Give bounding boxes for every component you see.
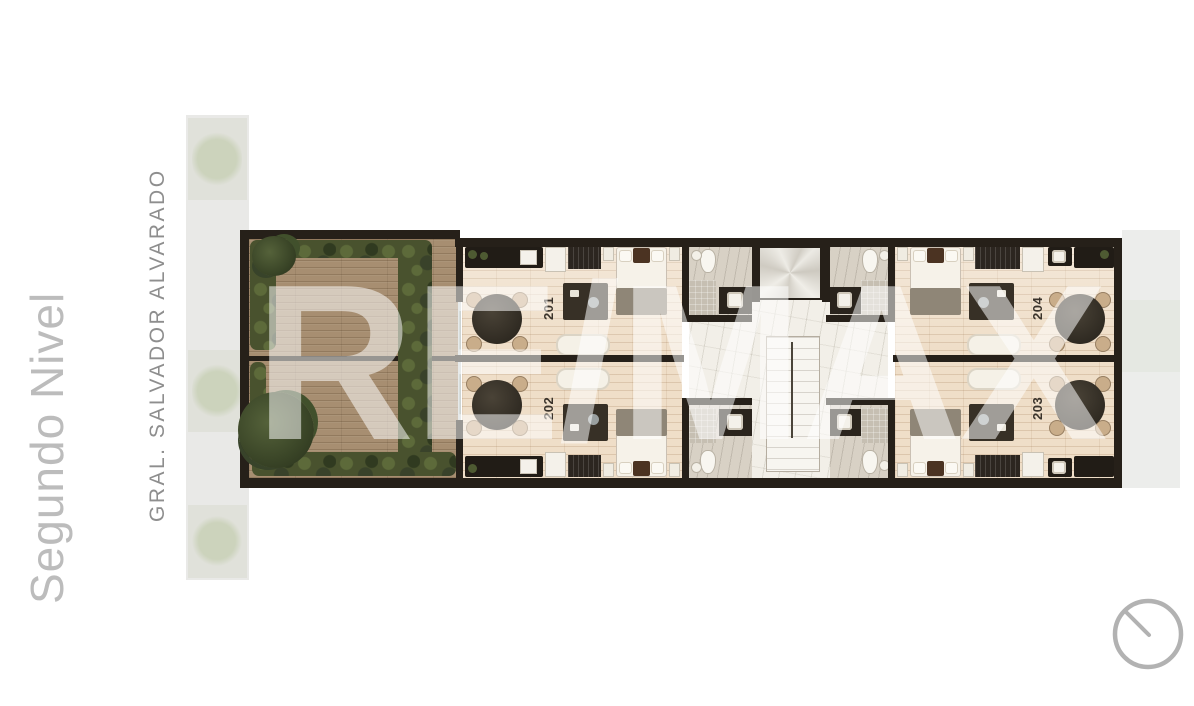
terrace-glass-door <box>458 362 461 420</box>
pillow <box>651 250 664 262</box>
unit-label-204: 204 <box>1030 297 1045 320</box>
desk <box>969 404 1014 441</box>
desk-chair <box>978 414 989 425</box>
wall <box>455 238 1122 247</box>
stair-rail <box>791 342 793 438</box>
plant-pot <box>1100 250 1109 259</box>
bath-sink <box>837 414 852 430</box>
desk-item <box>570 424 579 431</box>
sofa <box>556 368 610 390</box>
pillow <box>651 462 664 474</box>
pillow <box>619 250 632 262</box>
dining-table <box>472 294 522 344</box>
fridge <box>545 452 566 477</box>
pillow <box>945 462 958 474</box>
wall <box>1114 238 1122 488</box>
faded-tree-icon <box>192 509 242 573</box>
nightstand <box>897 247 908 261</box>
toilet <box>700 249 716 273</box>
kitchen-sink <box>1052 250 1066 263</box>
elevator-wall <box>752 238 760 302</box>
nightstand <box>603 463 614 477</box>
sidewalk-tree-tile <box>188 350 247 432</box>
sofa <box>556 334 610 356</box>
bathroom-wall <box>689 315 752 322</box>
wardrobe <box>568 455 601 477</box>
plant-pot <box>468 464 477 473</box>
faded-tree-icon <box>192 124 242 194</box>
pillow <box>619 462 632 474</box>
bathroom-wall <box>689 398 752 405</box>
dining-chair <box>466 336 482 352</box>
headboard-cushion <box>633 248 650 263</box>
kitchen-counter <box>1074 456 1114 477</box>
terrace-glass-door <box>458 302 461 355</box>
kitchen-counter <box>1074 247 1114 268</box>
wall <box>455 478 1122 488</box>
fridge <box>1022 452 1044 477</box>
street-name-label: GRAL. SALVADOR ALVARADO <box>146 168 170 522</box>
faded-tree-icon <box>1122 300 1180 372</box>
wall <box>456 420 463 488</box>
dining-chair <box>512 336 528 352</box>
bed-blanket <box>910 409 961 436</box>
wall <box>682 398 689 488</box>
planter-hedge <box>398 240 432 476</box>
shower <box>861 280 888 315</box>
bed-blanket <box>910 288 961 315</box>
shower <box>689 280 716 315</box>
sofa <box>967 368 1021 390</box>
page-title: Segundo Nivel <box>20 292 74 604</box>
nightstand <box>897 463 908 477</box>
wall <box>240 478 460 488</box>
headboard-cushion <box>927 248 944 263</box>
sink-pedestal <box>691 462 702 473</box>
shower <box>861 408 888 443</box>
nightstand <box>603 247 614 261</box>
sofa <box>967 334 1021 356</box>
kitchen-sink <box>520 459 537 474</box>
dining-table <box>1055 294 1105 344</box>
plant-pot <box>468 250 477 259</box>
bed-blanket <box>616 409 667 436</box>
nightstand <box>669 463 680 477</box>
unit-label-202: 202 <box>541 397 556 420</box>
kitchen-sink <box>520 250 537 265</box>
bed-blanket <box>616 288 667 315</box>
wall <box>888 398 895 488</box>
bathroom-wall <box>826 398 888 405</box>
wardrobe <box>568 247 601 269</box>
pillow <box>913 462 926 474</box>
toilet <box>862 249 878 273</box>
nightstand <box>963 247 974 261</box>
elevator-wall <box>822 238 830 302</box>
toilet <box>700 450 716 474</box>
kitchen-sink <box>1052 461 1066 474</box>
elevator <box>758 246 822 300</box>
bath-sink <box>727 414 743 430</box>
pillow <box>913 250 926 262</box>
bathroom-wall <box>826 315 888 322</box>
wall <box>682 238 689 322</box>
dining-table <box>1055 380 1105 430</box>
bath-sink <box>727 292 743 308</box>
unit-label-201: 201 <box>541 297 556 320</box>
sidewalk-right <box>1122 230 1180 488</box>
desk-chair <box>978 297 989 308</box>
wall <box>456 238 463 302</box>
unit-label-203: 203 <box>1030 397 1045 420</box>
headboard-cushion <box>633 461 650 476</box>
compass-dial-icon <box>1108 594 1188 674</box>
floor-plan-page: Segundo Nivel GRAL. SALVADOR ALVARADO <box>0 0 1194 706</box>
unit-divider-wall <box>893 355 1122 362</box>
shower <box>689 408 716 443</box>
desk-chair <box>588 414 599 425</box>
desk <box>969 283 1014 320</box>
staircase <box>766 336 820 472</box>
wall <box>888 238 895 322</box>
unit-divider-wall <box>455 355 684 362</box>
sidewalk-tree-tile <box>188 505 247 578</box>
faded-tree-icon <box>192 356 242 426</box>
toilet <box>862 450 878 474</box>
dining-chair <box>1049 336 1065 352</box>
wardrobe <box>975 247 1020 269</box>
desk-item <box>570 290 579 297</box>
desk-item <box>997 290 1006 297</box>
bath-sink <box>837 292 852 308</box>
fridge <box>545 247 566 272</box>
sink-pedestal <box>691 250 702 261</box>
plant-pot <box>480 252 488 260</box>
fridge <box>1022 247 1044 272</box>
terrace-tree <box>238 392 314 468</box>
terrace-tree <box>252 236 296 276</box>
dining-chair <box>1095 336 1111 352</box>
desk <box>563 404 608 441</box>
nightstand <box>669 247 680 261</box>
sidewalk-tree-tile <box>188 118 247 200</box>
desk <box>563 283 608 320</box>
headboard-cushion <box>927 461 944 476</box>
dining-table <box>472 380 522 430</box>
desk-chair <box>588 297 599 308</box>
nightstand <box>963 463 974 477</box>
desk-item <box>997 424 1006 431</box>
pillow <box>945 250 958 262</box>
wardrobe <box>975 455 1020 477</box>
